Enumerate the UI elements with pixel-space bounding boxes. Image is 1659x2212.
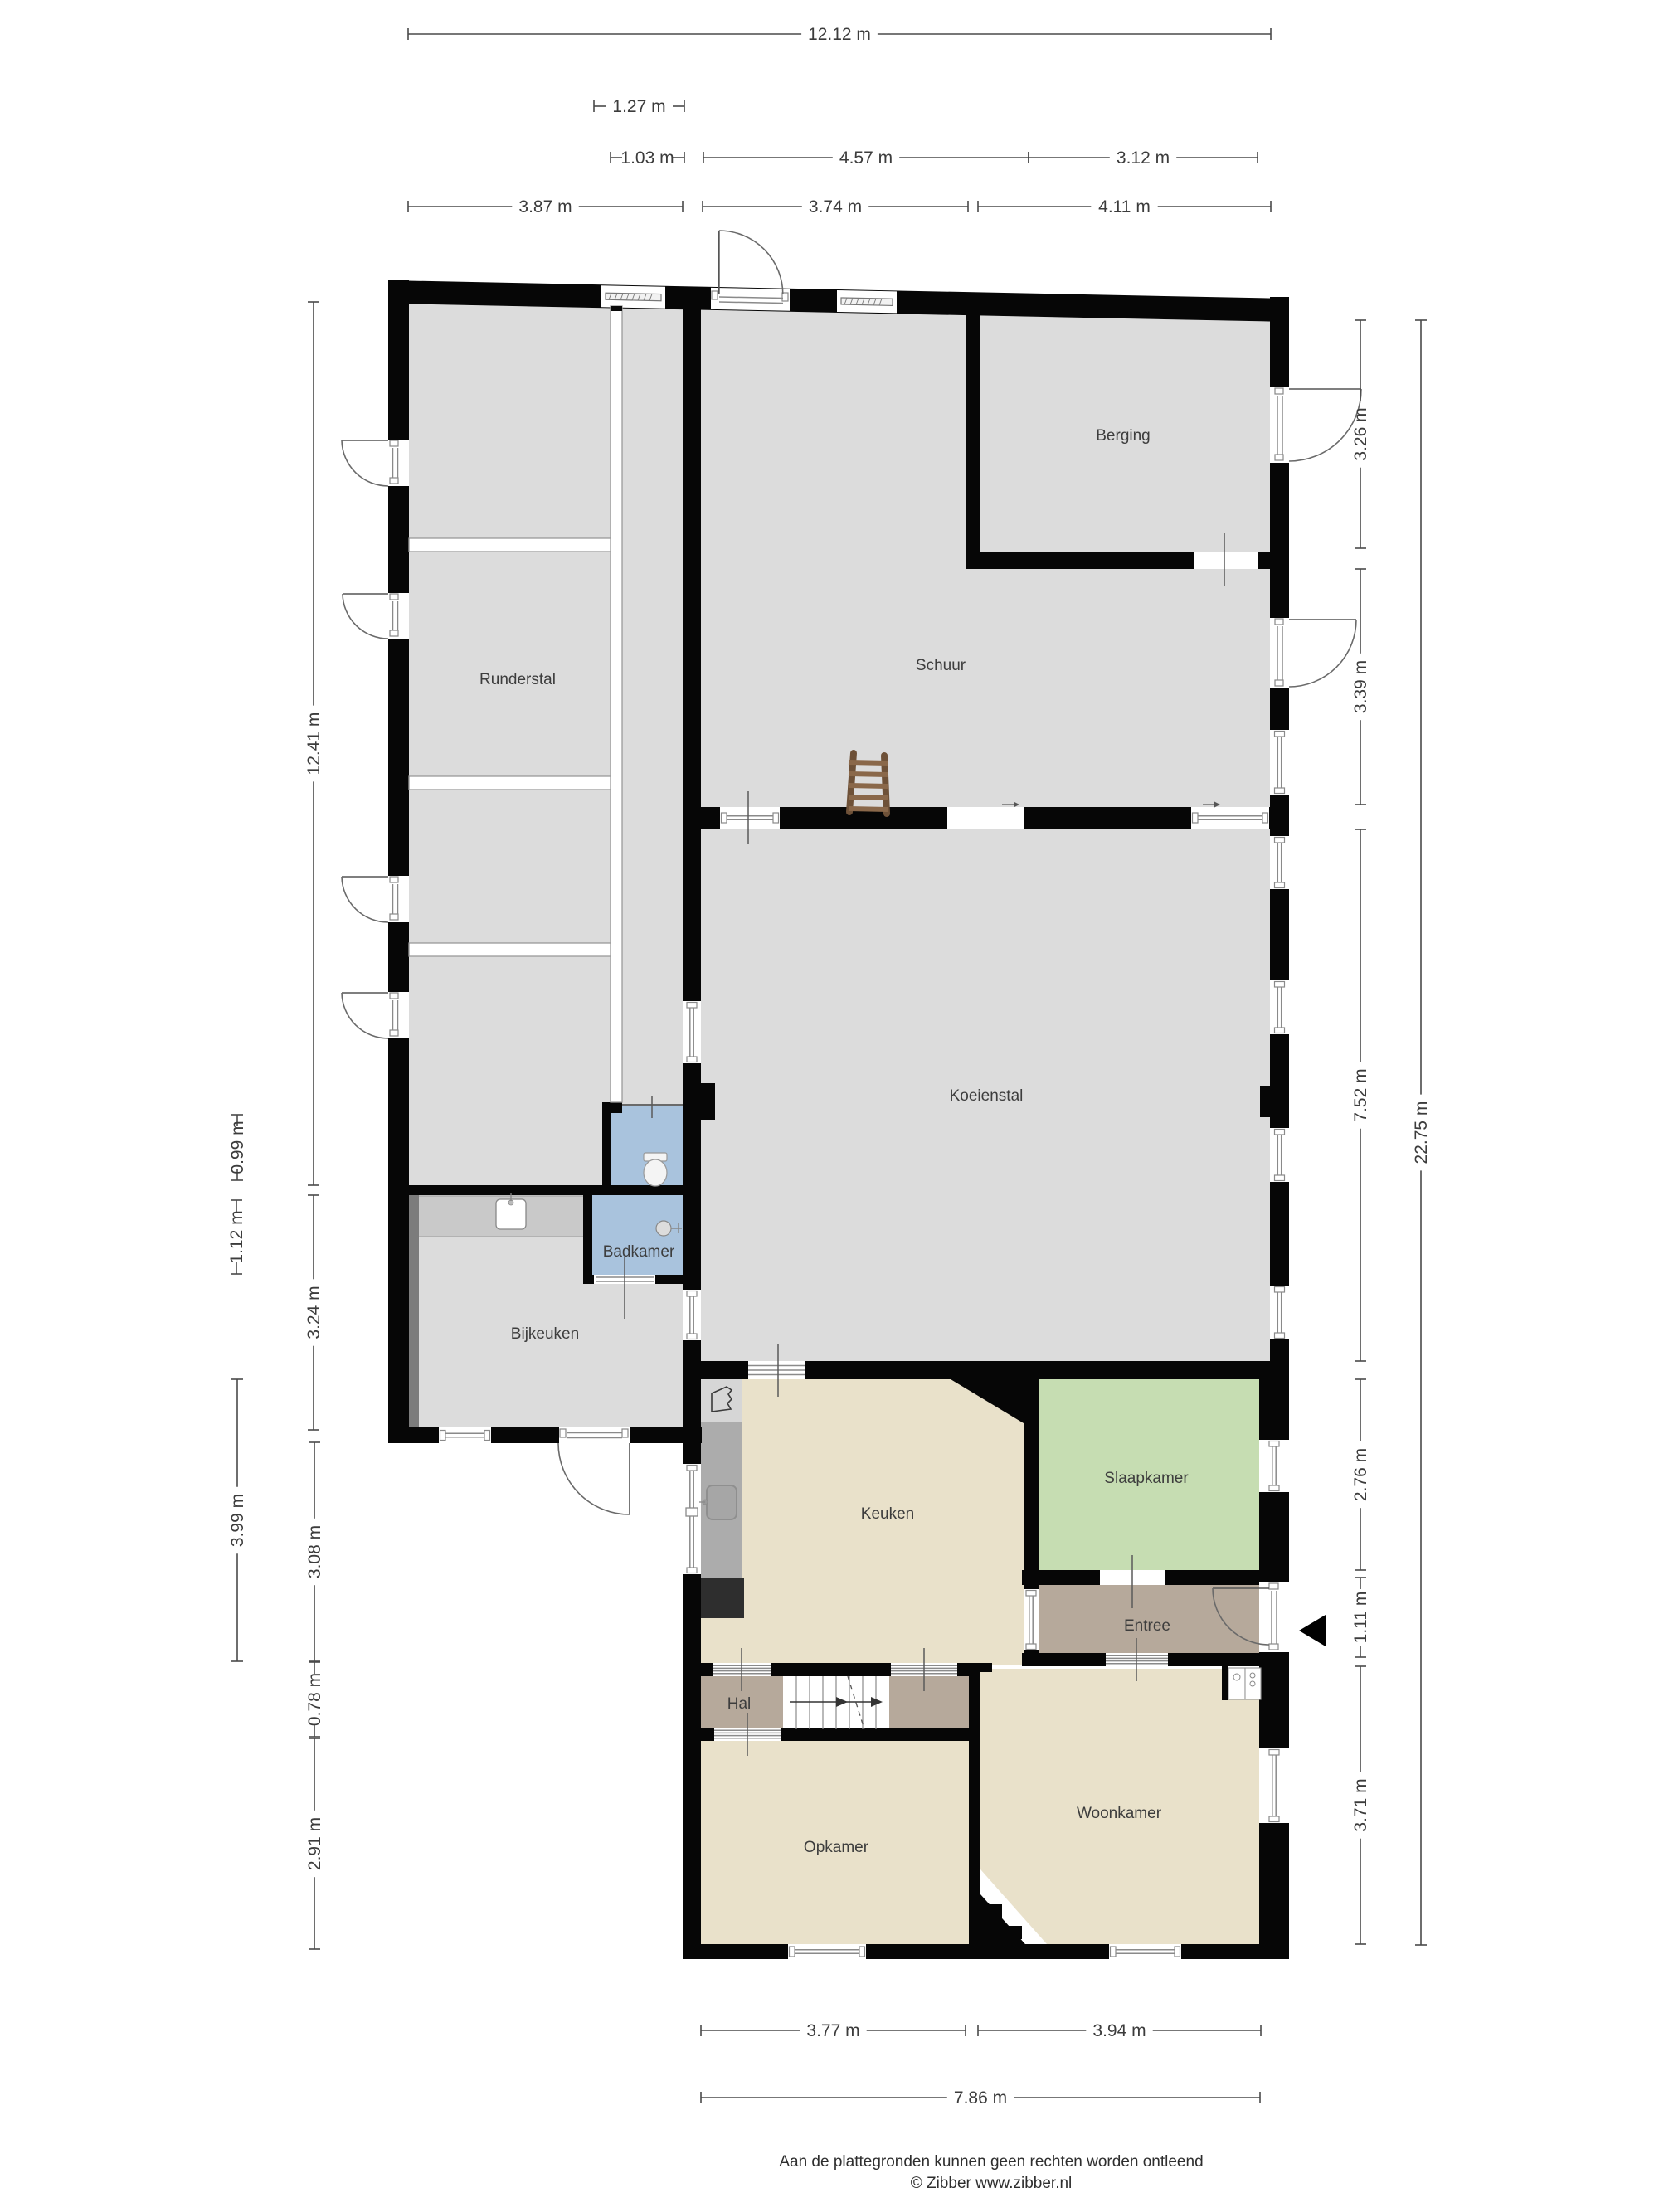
svg-text:1.11 m: 1.11 m — [1351, 1592, 1370, 1644]
svg-text:12.12 m: 12.12 m — [808, 25, 871, 44]
svg-text:Badkamer: Badkamer — [603, 1243, 675, 1261]
svg-text:3.08 m: 3.08 m — [305, 1525, 324, 1578]
svg-text:Koeienstal: Koeienstal — [950, 1087, 1024, 1105]
svg-text:0.99 m: 0.99 m — [228, 1121, 247, 1174]
svg-text:1.27 m: 1.27 m — [612, 97, 665, 116]
svg-text:Keuken: Keuken — [861, 1505, 914, 1523]
svg-text:Bijkeuken: Bijkeuken — [511, 1325, 579, 1343]
svg-text:7.86 m: 7.86 m — [954, 2088, 1007, 2107]
svg-text:3.94 m: 3.94 m — [1092, 2021, 1146, 2040]
svg-text:Schuur: Schuur — [916, 657, 966, 674]
svg-text:7.52 m: 7.52 m — [1351, 1068, 1370, 1121]
svg-text:3.24 m: 3.24 m — [304, 1286, 324, 1339]
svg-text:3.74 m: 3.74 m — [809, 197, 862, 216]
svg-text:3.99 m: 3.99 m — [228, 1494, 247, 1547]
svg-text:© Zibber www.zibber.nl: © Zibber www.zibber.nl — [911, 2175, 1073, 2192]
svg-text:3.87 m: 3.87 m — [518, 197, 572, 216]
svg-text:Woonkamer: Woonkamer — [1077, 1805, 1162, 1822]
svg-text:3.26 m: 3.26 m — [1351, 407, 1370, 460]
svg-text:4.57 m: 4.57 m — [839, 148, 893, 168]
svg-text:3.71 m: 3.71 m — [1351, 1778, 1370, 1831]
svg-text:12.41 m: 12.41 m — [304, 712, 324, 775]
svg-text:Berging: Berging — [1096, 427, 1151, 445]
svg-text:Hal: Hal — [727, 1695, 752, 1713]
svg-text:4.11 m: 4.11 m — [1098, 197, 1151, 216]
svg-text:3.12 m: 3.12 m — [1117, 148, 1170, 168]
svg-text:Opkamer: Opkamer — [804, 1839, 869, 1856]
svg-text:1.12 m: 1.12 m — [227, 1210, 246, 1263]
svg-text:2.76 m: 2.76 m — [1351, 1448, 1370, 1501]
svg-text:1.03 m: 1.03 m — [620, 148, 674, 168]
svg-text:Slaapkamer: Slaapkamer — [1104, 1470, 1189, 1487]
svg-text:Aan de plattegronden kunnen ge: Aan de plattegronden kunnen geen rechten… — [779, 2153, 1203, 2171]
svg-text:22.75 m: 22.75 m — [1412, 1101, 1431, 1164]
svg-text:Entree: Entree — [1124, 1617, 1170, 1635]
svg-text:Runderstal: Runderstal — [479, 671, 556, 688]
svg-text:2.91 m: 2.91 m — [305, 1817, 324, 1870]
svg-text:0.78 m: 0.78 m — [305, 1673, 324, 1726]
svg-text:3.39 m: 3.39 m — [1351, 660, 1370, 713]
svg-text:3.77 m: 3.77 m — [806, 2021, 859, 2040]
